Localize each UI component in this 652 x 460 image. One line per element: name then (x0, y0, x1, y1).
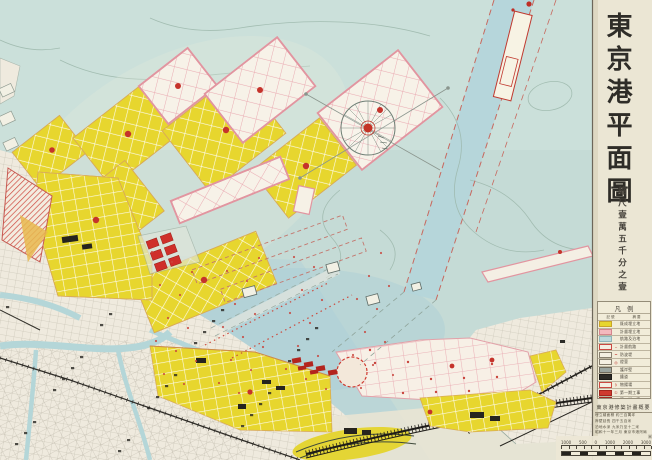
legend-row: ①第一期工事 (598, 388, 650, 396)
legend-row: 〻物揚場 (598, 381, 650, 389)
info-box-title: 東京港修築計畫概要 (595, 404, 652, 413)
legend-swatch (599, 374, 612, 380)
legend-mark: ╌ (612, 345, 620, 350)
legend-swatch (599, 336, 612, 342)
legend-header-desc: 摘要 (624, 315, 650, 320)
legend-row: 既成埋立地 (598, 320, 650, 328)
legend-row: ╌計畫航路 (598, 343, 650, 351)
legend-label: 護岸壁 (620, 367, 632, 373)
daiba-fort-outline (337, 357, 367, 387)
legend-swatch (599, 352, 612, 358)
legend-row: ②第二期工事 (598, 396, 650, 399)
info-box-lines: 埋立總面積 約三百萬坪岸壁延長 四千五百米泊地水深 九米乃至十二米昭和十一年三月… (595, 413, 652, 436)
legend-mark: ① (612, 390, 620, 395)
legend-label: 防波堤 (620, 352, 632, 358)
legend-mark: ② (612, 398, 620, 399)
legend-label: 第二期工事 (620, 397, 640, 399)
scanned-map-page: 東京港平面圖 縮尺壹萬五千分之壹 凡例 記號 摘要 既成埋立地計畫埋立地航路及泊… (0, 0, 652, 460)
legend-row: 航路及泊地 (598, 335, 650, 343)
legend-label: 既成埋立地 (620, 321, 640, 327)
legend-row: ━防波堤 (598, 350, 650, 358)
scale-bar-ticks (561, 445, 651, 449)
legend-title: 凡例 (598, 302, 650, 313)
info-box: 東京港修築計畫概要 埋立總面積 約三百萬坪岸壁延長 四千五百米泊地水深 九米乃至… (595, 404, 652, 436)
legend-swatch (599, 390, 612, 396)
legend-mark: ◎ (612, 360, 620, 365)
legend-label: 燈臺 (620, 359, 628, 365)
legend-swatch (599, 329, 612, 335)
legend-mark: 〻 (612, 382, 620, 388)
legend-header-symbol: 記號 (598, 315, 624, 320)
legend-swatch (599, 344, 612, 350)
legend-swatch (599, 397, 612, 399)
scale-bar-unit: 米 (648, 434, 652, 440)
legend-label: 航路及泊地 (620, 336, 640, 342)
map-canvas (0, 0, 593, 460)
scale-note: 縮尺壹萬五千分之壹 (617, 186, 626, 298)
legend-label: 計畫航路 (620, 344, 636, 350)
legend-header: 記號 摘要 (598, 313, 650, 320)
legend-swatch (599, 359, 612, 365)
legend-mark: ━ (612, 352, 620, 357)
legend-swatch (599, 382, 612, 388)
legend-row: 計畫埋立地 (598, 328, 650, 336)
legend-label: 物揚場 (620, 382, 632, 388)
legend-row: 鐵道 (598, 373, 650, 381)
legend-rows: 既成埋立地計畫埋立地航路及泊地╌計畫航路━防波堤◎燈臺護岸壁鐵道〻物揚場①第一期… (598, 320, 650, 399)
legend-swatch (599, 321, 612, 327)
legend-label: 鐵道 (620, 374, 628, 380)
info-line: 昭和十一年三月 東京市港灣局 (595, 430, 652, 436)
legend-label: 第一期工事 (620, 390, 640, 396)
scale-bar: 米 10005000100020003000 (561, 440, 651, 456)
legend-label: 計畫埋立地 (620, 329, 640, 335)
legend-row: ◎燈臺 (598, 358, 650, 366)
legend-swatch (599, 367, 612, 373)
legend-row: 護岸壁 (598, 366, 650, 374)
tokyo-port-map-artwork (0, 0, 652, 460)
scale-bar-segments (561, 451, 651, 456)
legend-box: 凡例 記號 摘要 既成埋立地計畫埋立地航路及泊地╌計畫航路━防波堤◎燈臺護岸壁鐵… (597, 301, 651, 399)
